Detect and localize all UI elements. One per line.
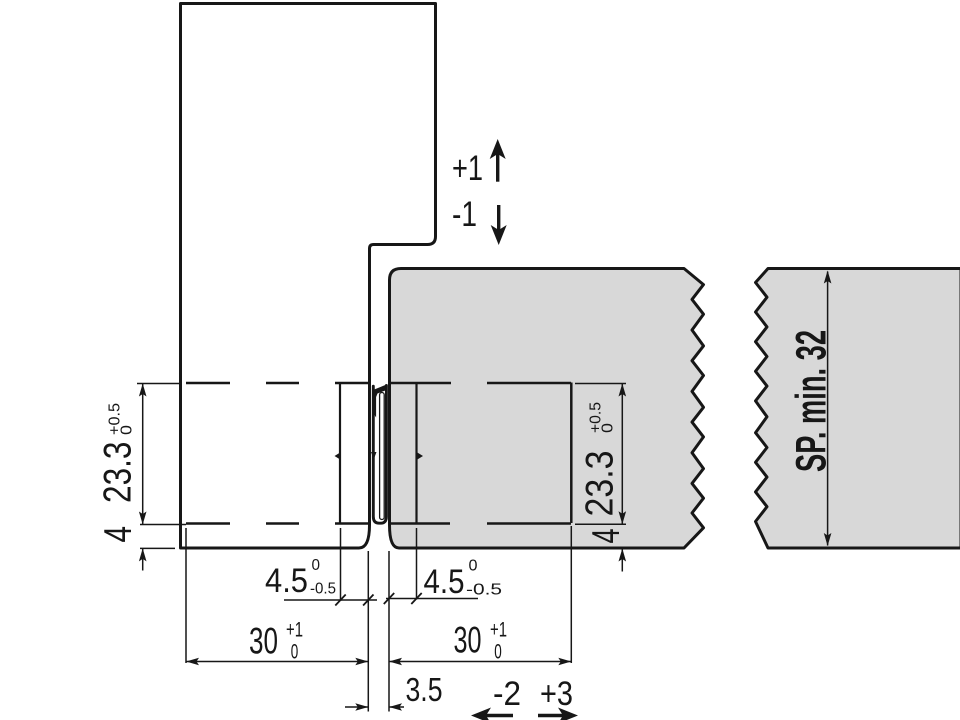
svg-text:-1: -1 [452, 195, 477, 234]
svg-text:0: 0 [312, 557, 321, 574]
svg-text:4.5: 4.5 [265, 562, 308, 600]
svg-text:30: 30 [454, 620, 482, 661]
svg-text:-0.5: -0.5 [310, 581, 336, 598]
svg-text:4.5: 4.5 [424, 563, 465, 601]
svg-text:4: 4 [97, 526, 140, 543]
svg-text:-2: -2 [493, 675, 521, 713]
svg-text:SP. min. 32: SP. min. 32 [787, 330, 835, 472]
svg-text:+1: +1 [490, 619, 507, 642]
svg-text:4: 4 [585, 529, 628, 544]
svg-text:0: 0 [469, 558, 478, 575]
svg-text:+3: +3 [540, 675, 573, 713]
svg-text:3.5: 3.5 [406, 671, 443, 708]
svg-text:23.3: 23.3 [97, 442, 140, 504]
svg-text:+1: +1 [286, 619, 303, 642]
svg-text:23.3: 23.3 [579, 451, 622, 517]
svg-text:0: 0 [291, 640, 299, 663]
svg-text:0: 0 [119, 425, 136, 435]
svg-text:0: 0 [494, 640, 502, 663]
svg-text:-0.5: -0.5 [466, 582, 502, 599]
svg-text:30: 30 [249, 621, 278, 662]
svg-text:+1: +1 [452, 149, 483, 188]
svg-text:0: 0 [600, 423, 617, 433]
